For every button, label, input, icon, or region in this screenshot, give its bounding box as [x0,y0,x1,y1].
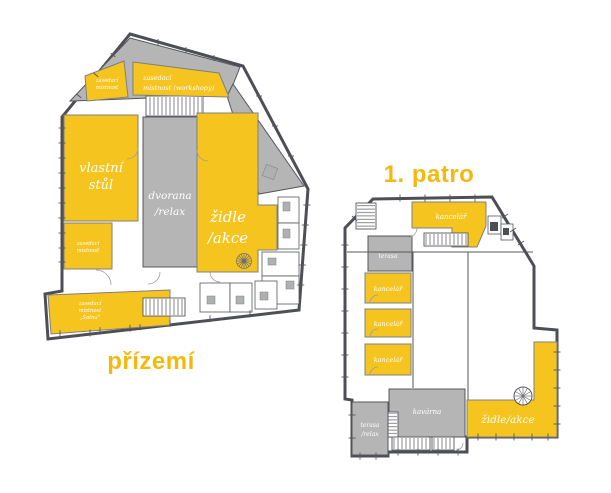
room-hall-relax-label-1: dvorana [148,190,191,202]
room-chairs-events-label-1: židle [209,208,246,226]
room-hall-relax-label-2: /relax [154,206,185,218]
room-terrace-label: terasa [378,253,397,260]
room-meeting-satna-label-3: „Šatna“ [80,313,101,321]
floor-plans-canvas: zasedací místnost zasedací místnost (wor… [0,0,611,493]
room-terrace-relax-label-1: terasa [360,422,379,429]
room-meeting-middle-label-2: místnost [77,247,100,254]
room-cafe-label: kavárna [413,408,442,416]
room-terrace-relax-label-2: /relax [360,431,379,438]
main-staircase-hatch [147,97,202,115]
room-meeting-workshops-label-1: zasedací [142,74,172,82]
room-own-desk-label-1: vlastní [79,161,125,176]
spiral-staircase [514,387,532,405]
room-chairs-events-first-label: židle/akce [480,413,534,426]
room-meeting-satna-label-1: zasedací [78,300,103,307]
room-meeting-top-label-2: místnost [96,84,119,91]
room-office-2-label: kancelář [374,320,403,328]
rosette-ornament [237,254,252,269]
room-meeting-workshops-label-2: místnost (workshopy) [143,84,215,92]
room-office-top-label: kancelář [436,213,467,221]
first-floor-plan: kancelář terasa kancelář kancelář kancel… [300,0,561,460]
ground-floor-plan: zasedací místnost zasedací místnost (wor… [45,34,310,375]
room-chairs-events-label-2: /akce [206,229,248,247]
first-floor-title: 1. patro [384,161,475,188]
room-office-1-label: kancelář [374,285,403,293]
ground-floor-title: přízemí [107,348,195,375]
first-staircase-center-hatch [425,234,467,245]
room-office-3-label: kancelář [374,356,403,364]
room-meeting-satna-label-2: místnost [79,307,102,314]
room-meeting-middle-label-1: zasedací [76,240,101,247]
room-meeting-top-label-1: zasedací [95,77,120,84]
floor-plan-page: zasedací místnost zasedací místnost (wor… [0,0,611,493]
first-staircase-left-hatch [357,204,375,228]
room-own-desk-label-2: stůl [89,177,113,193]
